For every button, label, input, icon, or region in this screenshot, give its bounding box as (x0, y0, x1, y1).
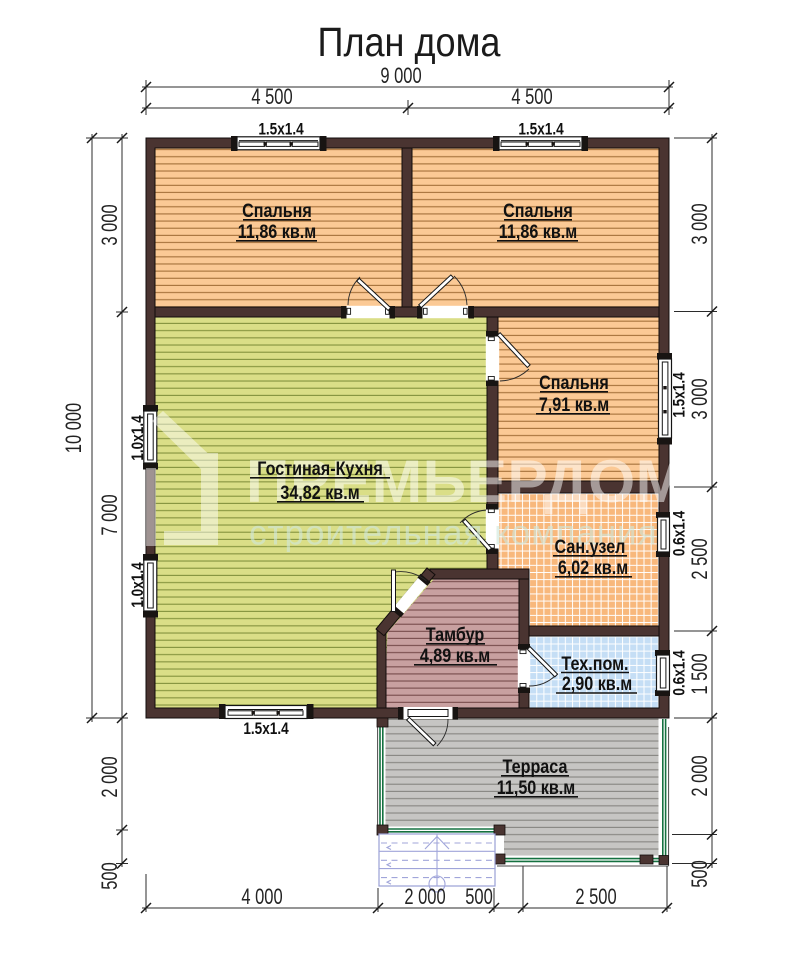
svg-text:4 500: 4 500 (251, 85, 292, 110)
svg-text:Тех.пом.: Тех.пом. (561, 653, 628, 675)
svg-text:34,82 кв.м: 34,82 кв.м (280, 482, 359, 504)
svg-text:1.5х1.4: 1.5х1.4 (518, 120, 564, 139)
svg-text:2 000: 2 000 (98, 756, 123, 797)
svg-text:1.0х1.4: 1.0х1.4 (129, 562, 148, 608)
svg-text:4,89 кв.м: 4,89 кв.м (420, 645, 490, 667)
svg-text:0.6х1.4: 0.6х1.4 (670, 510, 689, 556)
svg-text:7,91 кв.м: 7,91 кв.м (539, 394, 609, 416)
svg-text:2 500: 2 500 (575, 885, 616, 910)
svg-text:План дома: План дома (318, 20, 501, 66)
svg-text:Спальня: Спальня (503, 200, 573, 222)
svg-text:1.0х1.4: 1.0х1.4 (129, 415, 148, 461)
svg-text:11,86 кв.м: 11,86 кв.м (499, 221, 577, 243)
svg-text:500: 500 (465, 885, 493, 910)
svg-text:2,90 кв.м: 2,90 кв.м (562, 673, 632, 695)
svg-text:3 000: 3 000 (98, 204, 123, 245)
svg-text:Сан.узел: Сан.узел (555, 536, 626, 558)
svg-text:6,02 кв.м: 6,02 кв.м (558, 557, 628, 579)
svg-text:4 500: 4 500 (511, 85, 552, 110)
svg-text:500: 500 (688, 860, 713, 888)
svg-text:4 000: 4 000 (241, 885, 282, 910)
svg-text:1.5х1.4: 1.5х1.4 (258, 120, 304, 139)
svg-text:10 000: 10 000 (62, 403, 87, 454)
svg-text:Гостиная-Кухня: Гостиная-Кухня (257, 458, 383, 480)
svg-text:11,50 кв.м: 11,50 кв.м (497, 777, 575, 799)
svg-text:Терраса: Терраса (503, 756, 568, 778)
svg-text:2 000: 2 000 (404, 885, 445, 910)
svg-text:7 000: 7 000 (98, 494, 123, 535)
svg-text:11,86 кв.м: 11,86 кв.м (238, 221, 316, 243)
svg-text:Спальня: Спальня (539, 372, 609, 394)
svg-text:Спальня: Спальня (242, 200, 312, 222)
svg-text:3 000: 3 000 (688, 378, 713, 419)
svg-text:1 500: 1 500 (688, 653, 713, 694)
svg-text:0.6х1.4: 0.6х1.4 (670, 650, 689, 696)
svg-text:500: 500 (98, 862, 123, 890)
svg-text:3 000: 3 000 (688, 203, 713, 244)
svg-text:Тамбур: Тамбур (426, 624, 485, 646)
svg-text:9 000: 9 000 (380, 64, 421, 89)
svg-text:1.5х1.4: 1.5х1.4 (670, 372, 689, 418)
svg-text:2 500: 2 500 (688, 538, 713, 579)
svg-text:2 000: 2 000 (688, 755, 713, 796)
svg-text:1.5х1.4: 1.5х1.4 (243, 720, 289, 739)
